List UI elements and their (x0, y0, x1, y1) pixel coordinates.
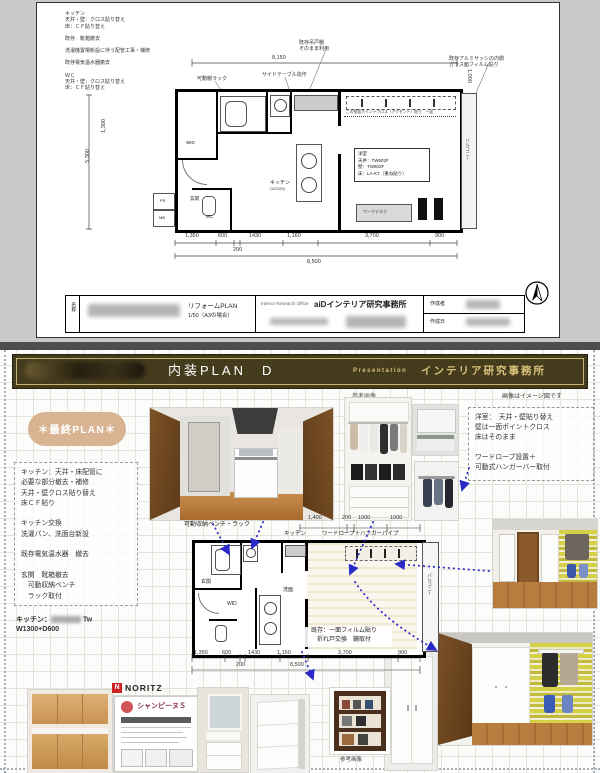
photo-hanger-bar (415, 462, 458, 520)
drawer-line (350, 497, 408, 498)
counter-edge (235, 457, 277, 460)
wall (216, 132, 292, 134)
white-wardrobe (472, 647, 530, 725)
work-line: 玄関 靴箱撤去 (21, 571, 131, 581)
work-line (21, 561, 131, 571)
shelf-board (339, 710, 381, 714)
door-gap (411, 657, 412, 763)
cabinet (206, 742, 242, 770)
work-line (21, 540, 131, 550)
address-redacted (270, 318, 328, 325)
kitchen-spec-suffix: Tw (83, 616, 92, 623)
photo-room-render-right (493, 520, 597, 608)
date-label: 作成日 (430, 319, 445, 325)
drawer-line (350, 507, 408, 508)
dim-bottom: 1,160 (277, 650, 291, 656)
bench-label: 可動収納ベンチ・ラック (184, 522, 250, 530)
accent-wall-note: この壁面ポイントクロス（アクセント）貼り 一面 (346, 110, 433, 115)
dim-top: 200 (342, 515, 351, 521)
cabinet-line (57, 694, 58, 724)
storage-box (379, 464, 391, 480)
handle (505, 686, 507, 688)
handle (415, 705, 417, 711)
kitchen-spec-prefix: キッチン： (16, 616, 51, 623)
panel-line (258, 723, 298, 726)
dim-top: 1000 (390, 515, 402, 521)
wall (230, 188, 232, 230)
shelf-caption: 参考画像 (340, 757, 362, 764)
work-desk: ワークデスク (356, 204, 412, 222)
cabinet-line (57, 734, 58, 769)
wardrobe (541, 534, 559, 584)
work-line: 天井・壁クロス貼り替え (21, 489, 131, 499)
work-line: 可動収納ベンチ (21, 581, 131, 591)
plan-kitchen-label: キッチン (284, 531, 306, 538)
handle (407, 705, 409, 711)
mb-label: MB (159, 215, 165, 220)
client-name-redacted (88, 304, 180, 317)
author-redacted (466, 300, 500, 309)
work-line: 洗濯パン、洗面台新設 (21, 530, 131, 540)
catalog-badge (121, 701, 133, 713)
genkan-label: 玄関 (190, 196, 199, 202)
catalog-card: シャンピーヌＳ (114, 696, 198, 772)
wall (216, 92, 218, 158)
wid-label: WID (227, 601, 237, 607)
work-line: 既存電気温水器 撤去 (21, 550, 131, 560)
washer-pan (270, 95, 290, 117)
photo-cabinets (413, 405, 458, 455)
dim-bottom: 3,700 (338, 650, 352, 656)
washer-pan (243, 545, 258, 562)
entry-door-arc (182, 160, 207, 185)
wood-door (517, 532, 539, 586)
storage-box (351, 464, 363, 480)
bathtub (215, 549, 230, 571)
work-line: 床ＣＦ貼り (21, 499, 131, 509)
stool (418, 198, 427, 220)
washer (274, 99, 287, 112)
hanger-mark (384, 549, 386, 558)
drawer-unit (349, 486, 409, 518)
shelf-frame (334, 691, 386, 751)
work-line (21, 509, 131, 519)
ps-box: PS (153, 193, 175, 210)
presentation-sheet: 内装PLAN D Presentation インテリア研究事務所 参考画像 画像… (0, 350, 600, 773)
towel (562, 695, 573, 713)
clothes-item (360, 424, 368, 454)
dim-top: 1,400 (308, 515, 322, 521)
room-note-line: 床はそのまま (475, 433, 587, 443)
window-note-line: 折れ戸交換 鏡取付 (296, 637, 392, 645)
cad-sheet: キッチン 天井・壁：クロス貼り替え 床：ＣＦ貼り替え 既存 靴箱撤去 洗濯機置場… (36, 2, 560, 338)
project-cell: リフォームPLAN 1/50（A3の場合） (80, 296, 256, 332)
wall (255, 588, 257, 649)
photo-white-wardrobe (385, 648, 437, 770)
cabinet-line (82, 734, 83, 769)
perforation-left (4, 350, 6, 773)
sink (264, 602, 277, 615)
hanger-mark (370, 549, 372, 558)
presentation-tag: Presentation (353, 368, 407, 376)
tel-fax-redacted (346, 316, 406, 328)
shelf-item (342, 700, 350, 709)
stool (434, 198, 443, 220)
catalog-line (121, 742, 179, 743)
cell-divider (424, 313, 524, 314)
shelf-item (342, 734, 354, 745)
upper-cabinets (32, 694, 108, 724)
shelf-board (339, 728, 381, 732)
catalog-banner (121, 717, 191, 723)
clothes-item (390, 424, 398, 451)
balcony-label: バルコニー (427, 573, 433, 596)
balcony: バルコニー (461, 93, 477, 229)
image-note: 画像はイメージ図です (502, 394, 562, 402)
dim-bottom: 1430 (248, 650, 260, 656)
room-info-line: 床：LA-KT（重ね貼り） (358, 171, 426, 178)
photo-room-render-bottom (438, 633, 592, 745)
accent-wall-line (344, 116, 456, 117)
entry-door-arc (198, 593, 219, 614)
lower-cabinets (32, 734, 108, 769)
window-note-line: 既存：一面フィルム貼り (296, 628, 392, 636)
plan-title: リフォームPLAN (188, 303, 237, 311)
kitchen-counter (296, 144, 322, 202)
dim-bottom: 600 (222, 650, 231, 656)
header-office-name: インテリア研究事務所 (421, 365, 546, 378)
room-note-line (475, 443, 587, 453)
photo-wardrobe-interior (345, 398, 411, 520)
stove (264, 622, 277, 635)
balcony-label: バルコニー (465, 138, 471, 161)
sink-top (239, 449, 273, 456)
final-plan-label: ＊最終PLAN＊ (38, 422, 117, 437)
wid-label: WID (186, 140, 195, 146)
vanity-front (257, 700, 299, 770)
wall (266, 92, 268, 132)
office-cell: Interior Research Office aiDインテリア研究事務所 (256, 296, 424, 332)
ceiling (493, 520, 597, 530)
wall (290, 92, 292, 132)
kitchen-spec-line1: キッチン： Tw (16, 616, 92, 625)
hanger-mark (409, 99, 411, 107)
photo-wood-shelf (330, 688, 390, 754)
bath-unit (220, 96, 266, 132)
date-redacted (466, 318, 510, 326)
doorway-left (180, 416, 230, 496)
presentation-header: 内装PLAN D Presentation インテリア研究事務所 (12, 354, 588, 389)
kitchen-spec-line2: W1300+D600 (16, 626, 59, 635)
office-en: Interior Research Office (261, 301, 308, 307)
catalog-title: シャンピーヌＳ (137, 703, 186, 712)
clothes-item (400, 424, 407, 453)
room-note-line: 可動式ハンガーバー取付 (475, 463, 587, 473)
author-label: 作成者 (430, 301, 445, 307)
room-note-line: ワードローブ設置＋ (475, 453, 587, 463)
wall-wood-left (150, 408, 180, 520)
toilet (215, 625, 227, 642)
wall (281, 543, 283, 573)
photo-washstand (198, 688, 248, 772)
work-list-box: キッチン：天井・床配管に 必要な部分撤去・補修 天井・壁クロス貼り替え 床ＣＦ貼… (14, 462, 138, 606)
storage-box (393, 464, 405, 480)
work-line: キッチン交換 (21, 519, 131, 529)
kitchen-upper-cabinet (294, 95, 338, 111)
photo-kitchen (28, 690, 112, 773)
kitchen-unit (234, 448, 278, 498)
room-info-box: 洋室 天井：TW602F 壁：TW602F 床：LA-KT（重ね貼り） (354, 148, 430, 182)
floor-plan-top: ワークデスク この壁面ポイントクロス（アクセント）貼り 一面 洋室 天井：TW6… (175, 89, 463, 233)
plan-scale: 1/50（A3の場合） (188, 313, 233, 320)
hanger-mark (361, 99, 363, 107)
catalog-line (121, 727, 191, 728)
genkan-label: 玄関 (201, 579, 211, 585)
side-panel (299, 699, 305, 769)
towel (567, 564, 576, 578)
shelf-item (358, 734, 368, 745)
name-strip-label: 名称 (70, 302, 76, 312)
coat (542, 653, 558, 687)
hanger-mark (433, 99, 435, 107)
floor (472, 723, 592, 745)
catalog-thumb (121, 749, 143, 767)
final-plan-badge: ＊最終PLAN＊ (28, 412, 126, 446)
company-logo (25, 362, 145, 379)
storage-box (365, 464, 377, 480)
sink (301, 153, 317, 169)
floor (493, 582, 597, 608)
ps-label: PS (160, 198, 165, 203)
panel-line (258, 745, 298, 748)
room-note-line: 洋室： 天井・壁貼り替え (475, 413, 587, 423)
wall-back (278, 428, 303, 494)
room-note-line: 壁は一面ポイントクロス (475, 423, 587, 433)
upper-cabinet (417, 409, 456, 433)
catalog-thumb (169, 749, 193, 767)
clothes-item (380, 424, 388, 454)
kitchen-model-redacted (51, 616, 81, 623)
bathtub (225, 101, 247, 127)
mirror (208, 694, 242, 730)
hanger-mark (385, 99, 387, 107)
shelf-item (353, 700, 361, 709)
hanger-mark (398, 549, 400, 558)
work-line: 必要な部分撤去・補修 (21, 478, 131, 488)
catalog-line (121, 732, 183, 733)
noritz-logo-icon: N (112, 683, 122, 693)
dim-bottom: 200 (236, 662, 245, 668)
photo-entry-render (150, 408, 333, 520)
author-cell: 作成者 作成日 (424, 296, 524, 332)
white-door (499, 534, 515, 582)
coat (565, 534, 589, 560)
title-block: 名称 リフォームPLAN 1/50（A3の場合） Interior Resear… (65, 295, 525, 333)
plan-wardrobe-label: ワードローブ＋ハンガーパイプ (322, 531, 399, 538)
wall (338, 92, 341, 126)
lower-cabinet (417, 439, 454, 451)
hanger-mark (356, 549, 358, 558)
mb-box: MB (153, 210, 175, 227)
drawer-line (207, 755, 241, 756)
noritz-logo-text: NORITZ (125, 683, 163, 693)
shelf-item (342, 716, 352, 726)
wood-door (438, 633, 472, 745)
kitchen-sub-label: (W2550) (270, 186, 285, 191)
desk-label: ワークデスク (363, 209, 387, 214)
range-hood (232, 408, 278, 434)
door (188, 422, 220, 492)
towel (445, 479, 453, 508)
shelf-item (356, 716, 366, 726)
dim-total: 8,500 (290, 662, 304, 668)
wardrobe-strip (346, 96, 456, 110)
shelf-item (365, 700, 373, 709)
catalog-line (121, 737, 187, 738)
wc-label: WC (206, 214, 214, 220)
clothes-item (370, 424, 378, 452)
cabinet-line (82, 694, 83, 724)
cad-sheet-area: キッチン 天井・壁：クロス貼り替え 床：ＣＦ貼り替え 既存 靴箱撤去 洗濯機置場… (0, 0, 600, 342)
washer (246, 548, 256, 558)
page-title: 内装PLAN D (168, 363, 274, 379)
senmen-label: 洗面 (283, 587, 293, 593)
clothes-item (350, 424, 358, 450)
bath-unit (211, 545, 241, 575)
towel (579, 564, 588, 578)
kitchen-upper-cabinet (285, 545, 306, 557)
towel (544, 695, 555, 713)
document: キッチン 天井・壁：クロス貼り替え 床：ＣＦ貼り替え 既存 靴箱撤去 洗濯機置場… (0, 0, 600, 773)
wall (195, 588, 242, 590)
wall-wood-right (303, 408, 333, 520)
stove (301, 177, 317, 193)
towel (423, 479, 432, 507)
wall (192, 188, 232, 190)
basin (206, 732, 240, 740)
photo-vanity-closeup (251, 695, 309, 773)
wardrobe (391, 656, 433, 764)
noritz-logo: N NORITZ (112, 682, 163, 694)
dim-bottom: 900 (398, 650, 407, 656)
room-notes-box: 洋室： 天井・壁貼り替え 壁は一面ポイントクロス 床はそのまま ワードローブ設置… (468, 407, 594, 481)
catalog-thumb (145, 749, 167, 767)
dim-top: 1000 (358, 515, 370, 521)
toilet (202, 196, 216, 216)
section-divider (0, 342, 600, 350)
coat (560, 653, 578, 685)
balcony: バルコニー (422, 542, 439, 652)
kitchen-counter (259, 595, 281, 645)
work-line: キッチン：天井・床配管に (21, 468, 131, 478)
wall (338, 154, 341, 230)
wardrobe-strip (345, 546, 417, 561)
work-line: ラック取付 (21, 592, 131, 602)
office-jp: aiDインテリア研究事務所 (314, 300, 406, 310)
dim-bottom: 1,350 (194, 650, 208, 656)
name-strip: 名称 (66, 296, 80, 332)
towel (434, 479, 443, 505)
window-note: 既存：一面フィルム貼り 折れ戸交換 鏡取付 (296, 627, 392, 647)
closet-top (349, 402, 409, 422)
handle (495, 686, 497, 688)
wall (209, 619, 237, 621)
